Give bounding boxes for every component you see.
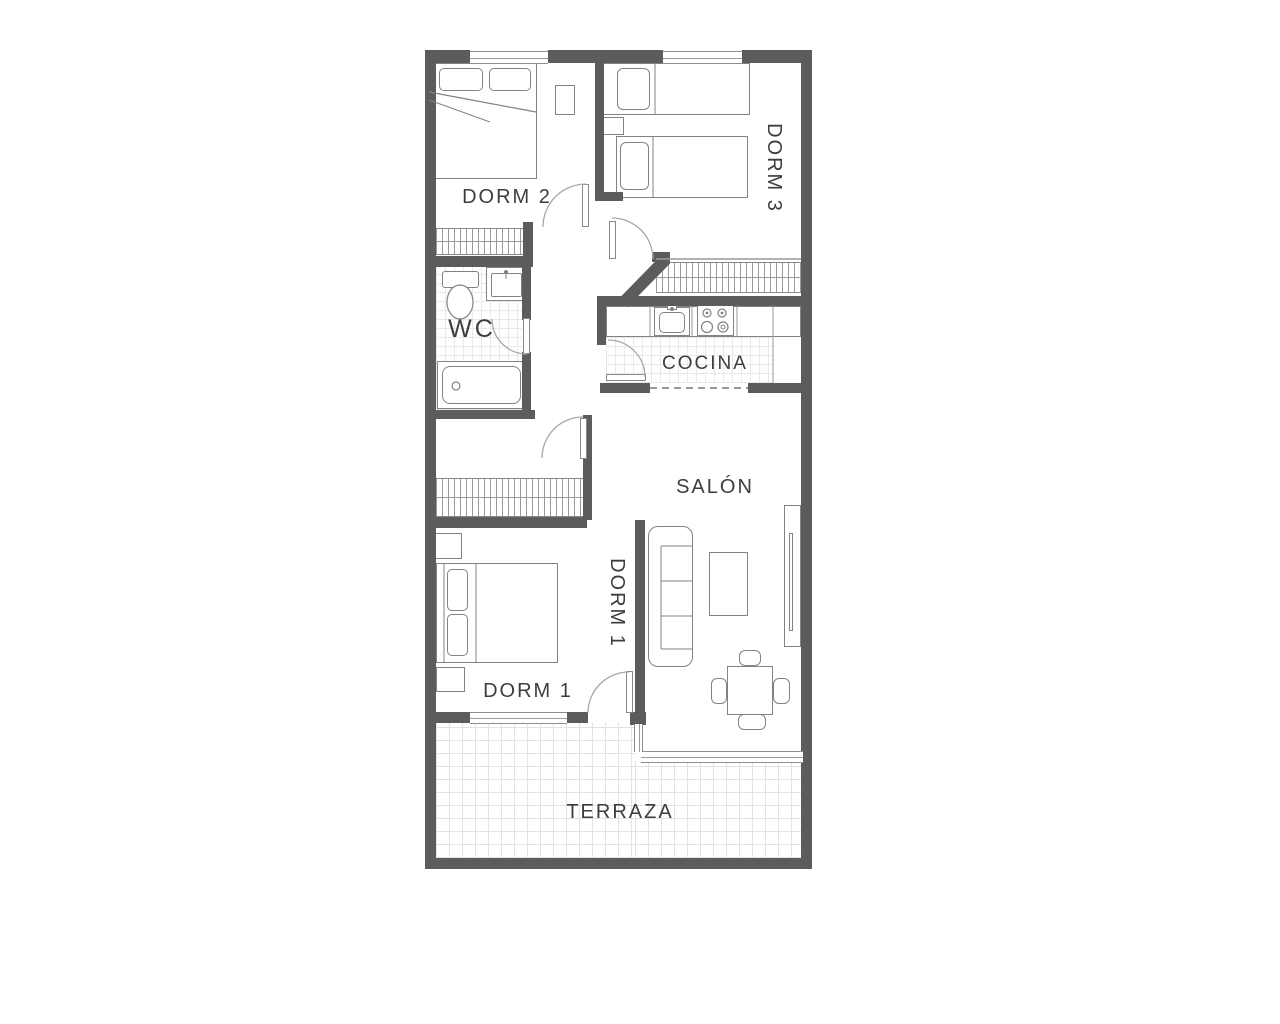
window-dorm2: [470, 51, 548, 64]
pillow: [447, 614, 468, 656]
room-label-wc: WC: [432, 317, 512, 341]
wall-diagonal-cap: [652, 252, 670, 262]
room-label-terraza: TERRAZA: [558, 800, 682, 824]
wall-wc-bottom: [425, 410, 535, 419]
window-salon-terrace-side: [634, 724, 643, 752]
pillow: [447, 569, 468, 611]
pillow: [620, 142, 649, 190]
wall-dorm1-bottom-right: [567, 712, 588, 723]
tv-screen: [789, 533, 793, 631]
nightstand-dorm2: [555, 85, 575, 115]
wall-kitchen-bottom-right: [748, 383, 801, 393]
room-label-dorm3: DORM 3: [762, 106, 786, 230]
wall-kitchen-topleft-stub: [597, 296, 627, 306]
door-leaf-kitchen: [606, 374, 646, 381]
bathtub-basin: [442, 366, 521, 404]
wardrobe-dorm3: [656, 262, 801, 293]
door-leaf-dorm2: [582, 184, 589, 227]
door-leaf-dorm1: [626, 671, 633, 713]
dining-chair: [711, 678, 727, 704]
door-arc-dorm3: [612, 218, 653, 259]
terrace-tiles-left: [436, 723, 635, 858]
dining-chair: [773, 678, 790, 704]
dining-table: [727, 666, 773, 715]
wall-kitchen-top: [625, 296, 801, 306]
door-leaf-dressing: [580, 418, 587, 459]
nightstand-dorm1-bottom: [436, 667, 465, 692]
sofa: [648, 526, 693, 667]
dining-chair: [739, 650, 761, 666]
wall-wc-right-upper: [522, 256, 531, 320]
wardrobe-dorm2: [430, 228, 523, 255]
dining-chair: [738, 714, 766, 730]
pillow: [617, 68, 650, 110]
wall-dorm1-bottom-left: [436, 712, 470, 723]
wall-right: [801, 50, 812, 869]
room-label-salon: SALÓN: [665, 475, 765, 499]
wall-dorm2-bottom: [425, 256, 523, 267]
wc-sink-basin: [491, 273, 522, 297]
floor-plan: DORM 2 DORM 3 WC COCINA SALÓN DORM 1 DOR…: [0, 0, 1280, 1024]
kitchen-sink-basin: [659, 312, 685, 333]
wall-dressing-bottom: [425, 517, 587, 528]
door-leaf-wc: [523, 318, 530, 354]
door-arc-dorm1: [588, 672, 629, 713]
door-leaf-dorm3: [609, 221, 616, 259]
wall-left: [425, 50, 436, 869]
stove: [697, 304, 734, 336]
toilet-tank: [442, 271, 479, 288]
door-arc-dressing: [542, 417, 583, 458]
wardrobe-dorm1: [436, 478, 583, 517]
wall-kitchen-left: [597, 306, 606, 345]
pillow: [439, 68, 483, 91]
window-salon-terrace: [641, 751, 803, 763]
room-label-dorm1: DORM 1: [466, 679, 590, 703]
wall-wc-right-lower: [522, 352, 531, 412]
wall-terrace-bottom: [425, 858, 812, 869]
wall-dorm1-salon: [635, 520, 645, 725]
room-label-cocina: COCINA: [655, 352, 755, 376]
wall-dorm2-dorm3: [595, 57, 604, 197]
wall-kitchen-bottom-left: [600, 383, 650, 393]
room-label-dorm1-vertical: DORM 1: [605, 541, 629, 665]
pillow: [489, 68, 531, 91]
window-dorm1: [470, 712, 567, 724]
wall-top-mid: [548, 50, 663, 63]
coffee-table: [709, 552, 748, 616]
nightstand-dorm3: [601, 117, 624, 135]
wall-dorm3-stub: [595, 192, 623, 201]
room-label-dorm2: DORM 2: [445, 185, 569, 209]
window-dorm3: [663, 51, 742, 64]
